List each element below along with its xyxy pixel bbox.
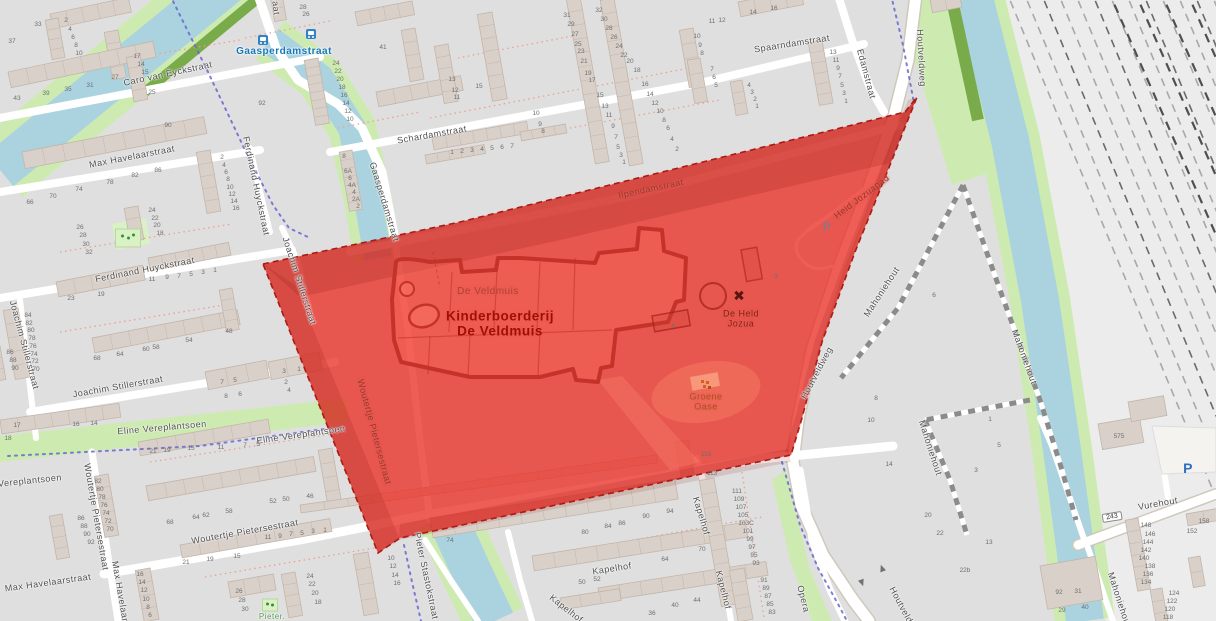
map-base-svg xyxy=(0,0,1216,621)
map-canvas[interactable]: Caro van EyckstraatGaasperdamstraatGaasp… xyxy=(0,0,1216,621)
